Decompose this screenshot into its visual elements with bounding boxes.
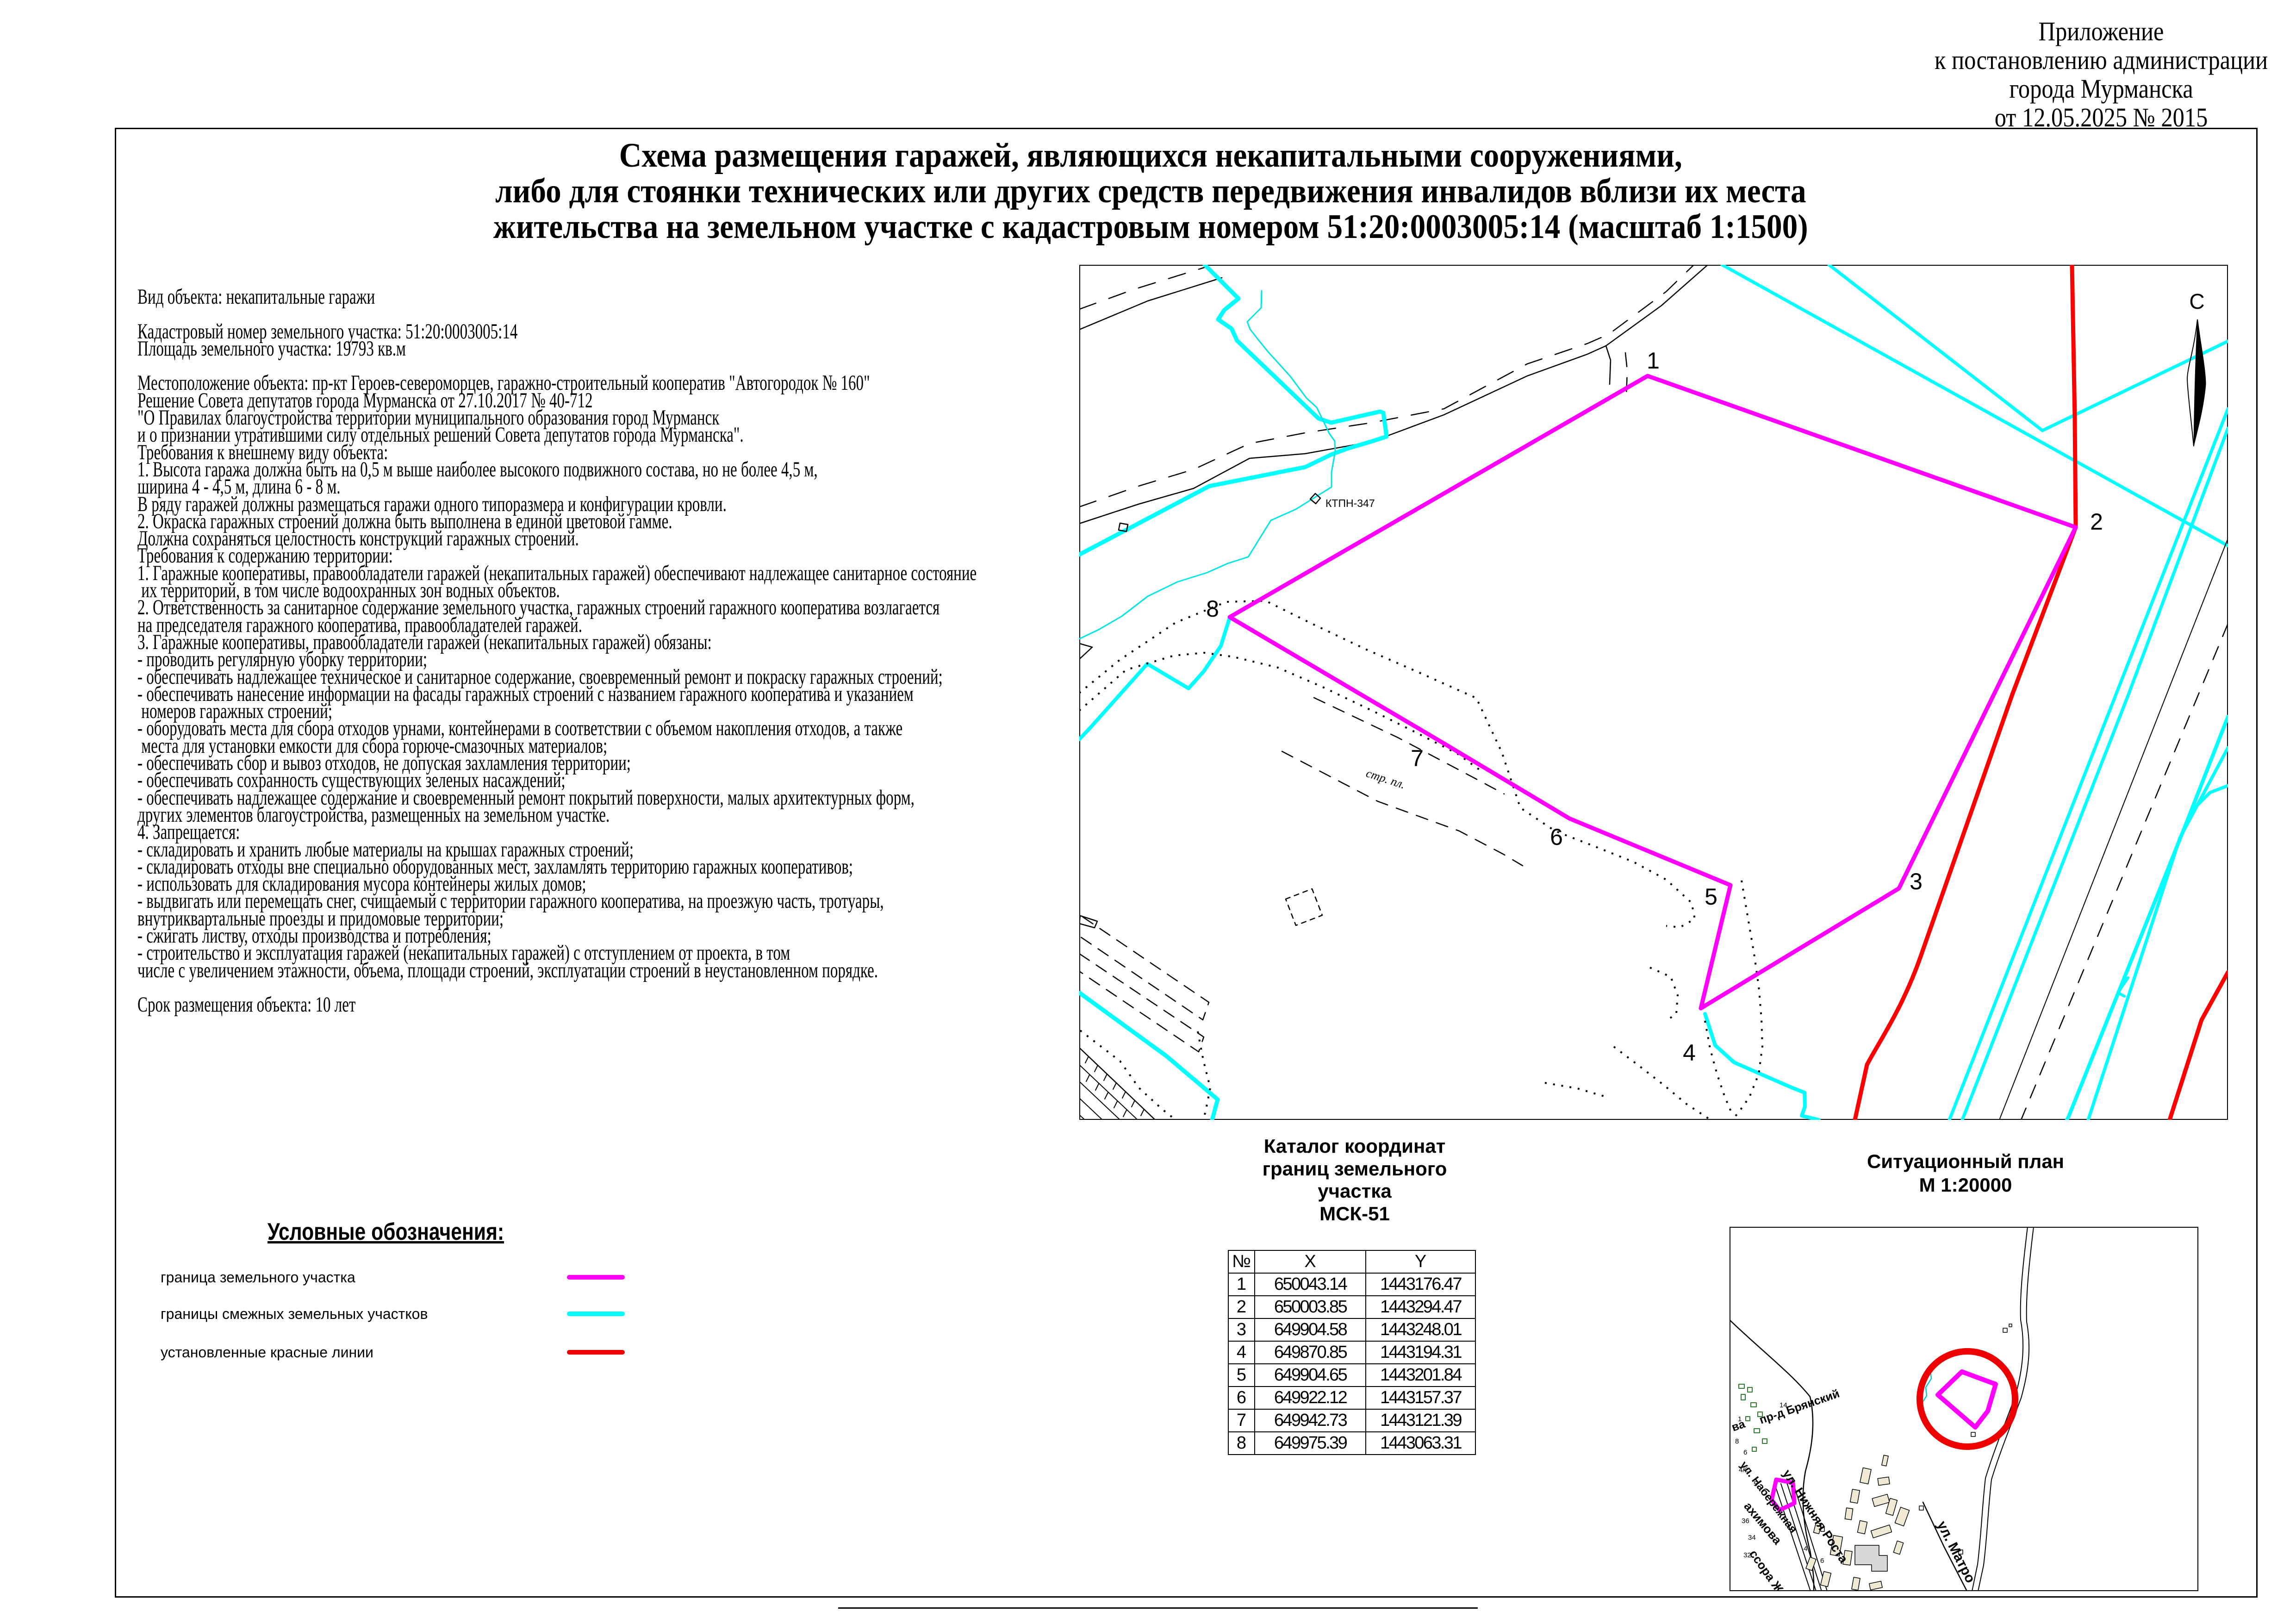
svg-text:4: 4 [1804,1545,1807,1553]
svg-text:6: 6 [1820,1557,1824,1565]
svg-text:1: 1 [1647,348,1660,374]
svg-text:32: 32 [1743,1551,1751,1559]
svg-text:КТПН-347: КТПН-347 [1325,497,1375,509]
svg-text:8: 8 [1206,596,1219,622]
svg-text:2: 2 [2090,509,2103,535]
svg-text:34: 34 [1748,1534,1756,1542]
svg-text:стр. пл.: стр. пл. [1364,766,1407,792]
svg-text:4/2: 4/2 [1739,1466,1748,1474]
svg-text:14: 14 [1780,1401,1787,1409]
svg-text:1: 1 [1738,1415,1742,1423]
svg-text:36: 36 [1742,1517,1749,1525]
svg-text:5: 5 [1754,1480,1757,1488]
svg-text:С: С [2189,289,2204,313]
svg-text:6: 6 [1550,824,1563,850]
svg-text:3: 3 [1910,868,1923,894]
svg-text:4: 4 [1683,1040,1696,1066]
svg-text:7: 7 [1411,745,1424,771]
svg-text:5: 5 [1705,884,1717,910]
svg-text:7: 7 [1774,1503,1778,1511]
svg-text:8: 8 [1735,1437,1739,1445]
svg-text:6: 6 [1743,1449,1747,1456]
